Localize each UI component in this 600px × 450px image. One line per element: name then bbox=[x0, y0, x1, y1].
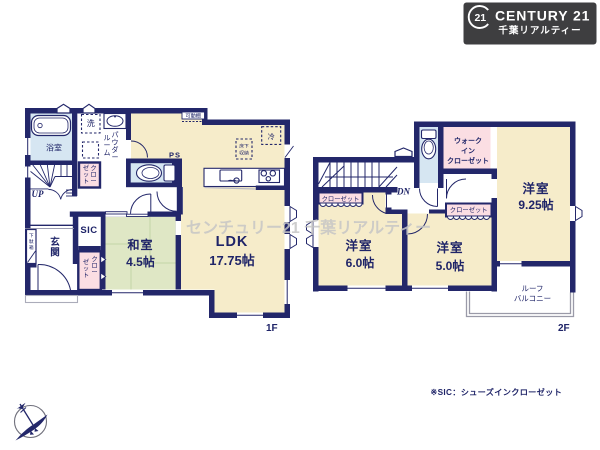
svg-text:イン: イン bbox=[461, 147, 475, 155]
svg-text:ウォーク: ウォーク bbox=[454, 136, 482, 145]
svg-text:ウ: ウ bbox=[112, 139, 119, 147]
svg-text:クローゼット: クローゼット bbox=[450, 205, 488, 214]
svg-text:冷: 冷 bbox=[268, 132, 275, 141]
svg-text:ー: ー bbox=[112, 155, 119, 162]
svg-text:2F: 2F bbox=[558, 323, 570, 334]
svg-text:PS: PS bbox=[169, 151, 181, 160]
svg-text:パ: パ bbox=[112, 131, 119, 139]
svg-text:ト: ト bbox=[83, 272, 89, 279]
svg-text:可動棚: 可動棚 bbox=[185, 112, 201, 120]
svg-text:クローゼット: クローゼット bbox=[447, 156, 489, 165]
svg-text:関: 関 bbox=[50, 248, 60, 259]
svg-text:ー: ー bbox=[91, 269, 97, 276]
svg-text:5.0帖: 5.0帖 bbox=[436, 258, 465, 273]
svg-text:床下: 床下 bbox=[239, 143, 249, 150]
svg-text:玄: 玄 bbox=[50, 236, 60, 248]
svg-text:17.75帖: 17.75帖 bbox=[209, 253, 255, 268]
svg-text:6.0帖: 6.0帖 bbox=[346, 255, 375, 270]
svg-text:センチュリー21 千葉リアルティー: センチュリー21 千葉リアルティー bbox=[186, 218, 431, 237]
svg-text:ルーフ: ルーフ bbox=[521, 284, 543, 293]
svg-text:洋室: 洋室 bbox=[436, 240, 463, 255]
svg-text:SIC: SIC bbox=[80, 225, 97, 236]
svg-text:千葉リアルティー: 千葉リアルティー bbox=[498, 25, 581, 37]
svg-text:4.5帖: 4.5帖 bbox=[126, 254, 155, 269]
svg-text:箱: 箱 bbox=[29, 244, 34, 251]
svg-text:CENTURY 21: CENTURY 21 bbox=[495, 8, 590, 24]
svg-text:ト: ト bbox=[83, 178, 89, 185]
svg-text:ダ: ダ bbox=[112, 145, 119, 154]
svg-text:DN: DN bbox=[396, 187, 410, 197]
svg-text:ー: ー bbox=[104, 143, 111, 150]
svg-text:クローゼット: クローゼット bbox=[322, 194, 360, 203]
svg-text:和室: 和室 bbox=[126, 237, 153, 252]
svg-text:洋室: 洋室 bbox=[345, 238, 372, 253]
svg-text:駄: 駄 bbox=[29, 238, 34, 245]
svg-text:バルコニー: バルコニー bbox=[514, 294, 551, 303]
svg-text:浴室: 浴室 bbox=[46, 143, 62, 153]
svg-text:※SIC：シューズインクローゼット: ※SIC：シューズインクローゼット bbox=[431, 387, 563, 397]
svg-text:ル: ル bbox=[104, 135, 111, 142]
svg-text:ー: ー bbox=[90, 178, 96, 185]
svg-text:洗: 洗 bbox=[87, 118, 95, 128]
svg-text:9.25帖: 9.25帖 bbox=[518, 197, 553, 212]
svg-text:洋室: 洋室 bbox=[522, 181, 549, 196]
svg-text:収納: 収納 bbox=[239, 150, 249, 157]
svg-text:ム: ム bbox=[104, 149, 111, 157]
svg-text:1F: 1F bbox=[266, 323, 278, 334]
svg-text:UP: UP bbox=[32, 189, 44, 199]
svg-text:21: 21 bbox=[474, 12, 486, 24]
